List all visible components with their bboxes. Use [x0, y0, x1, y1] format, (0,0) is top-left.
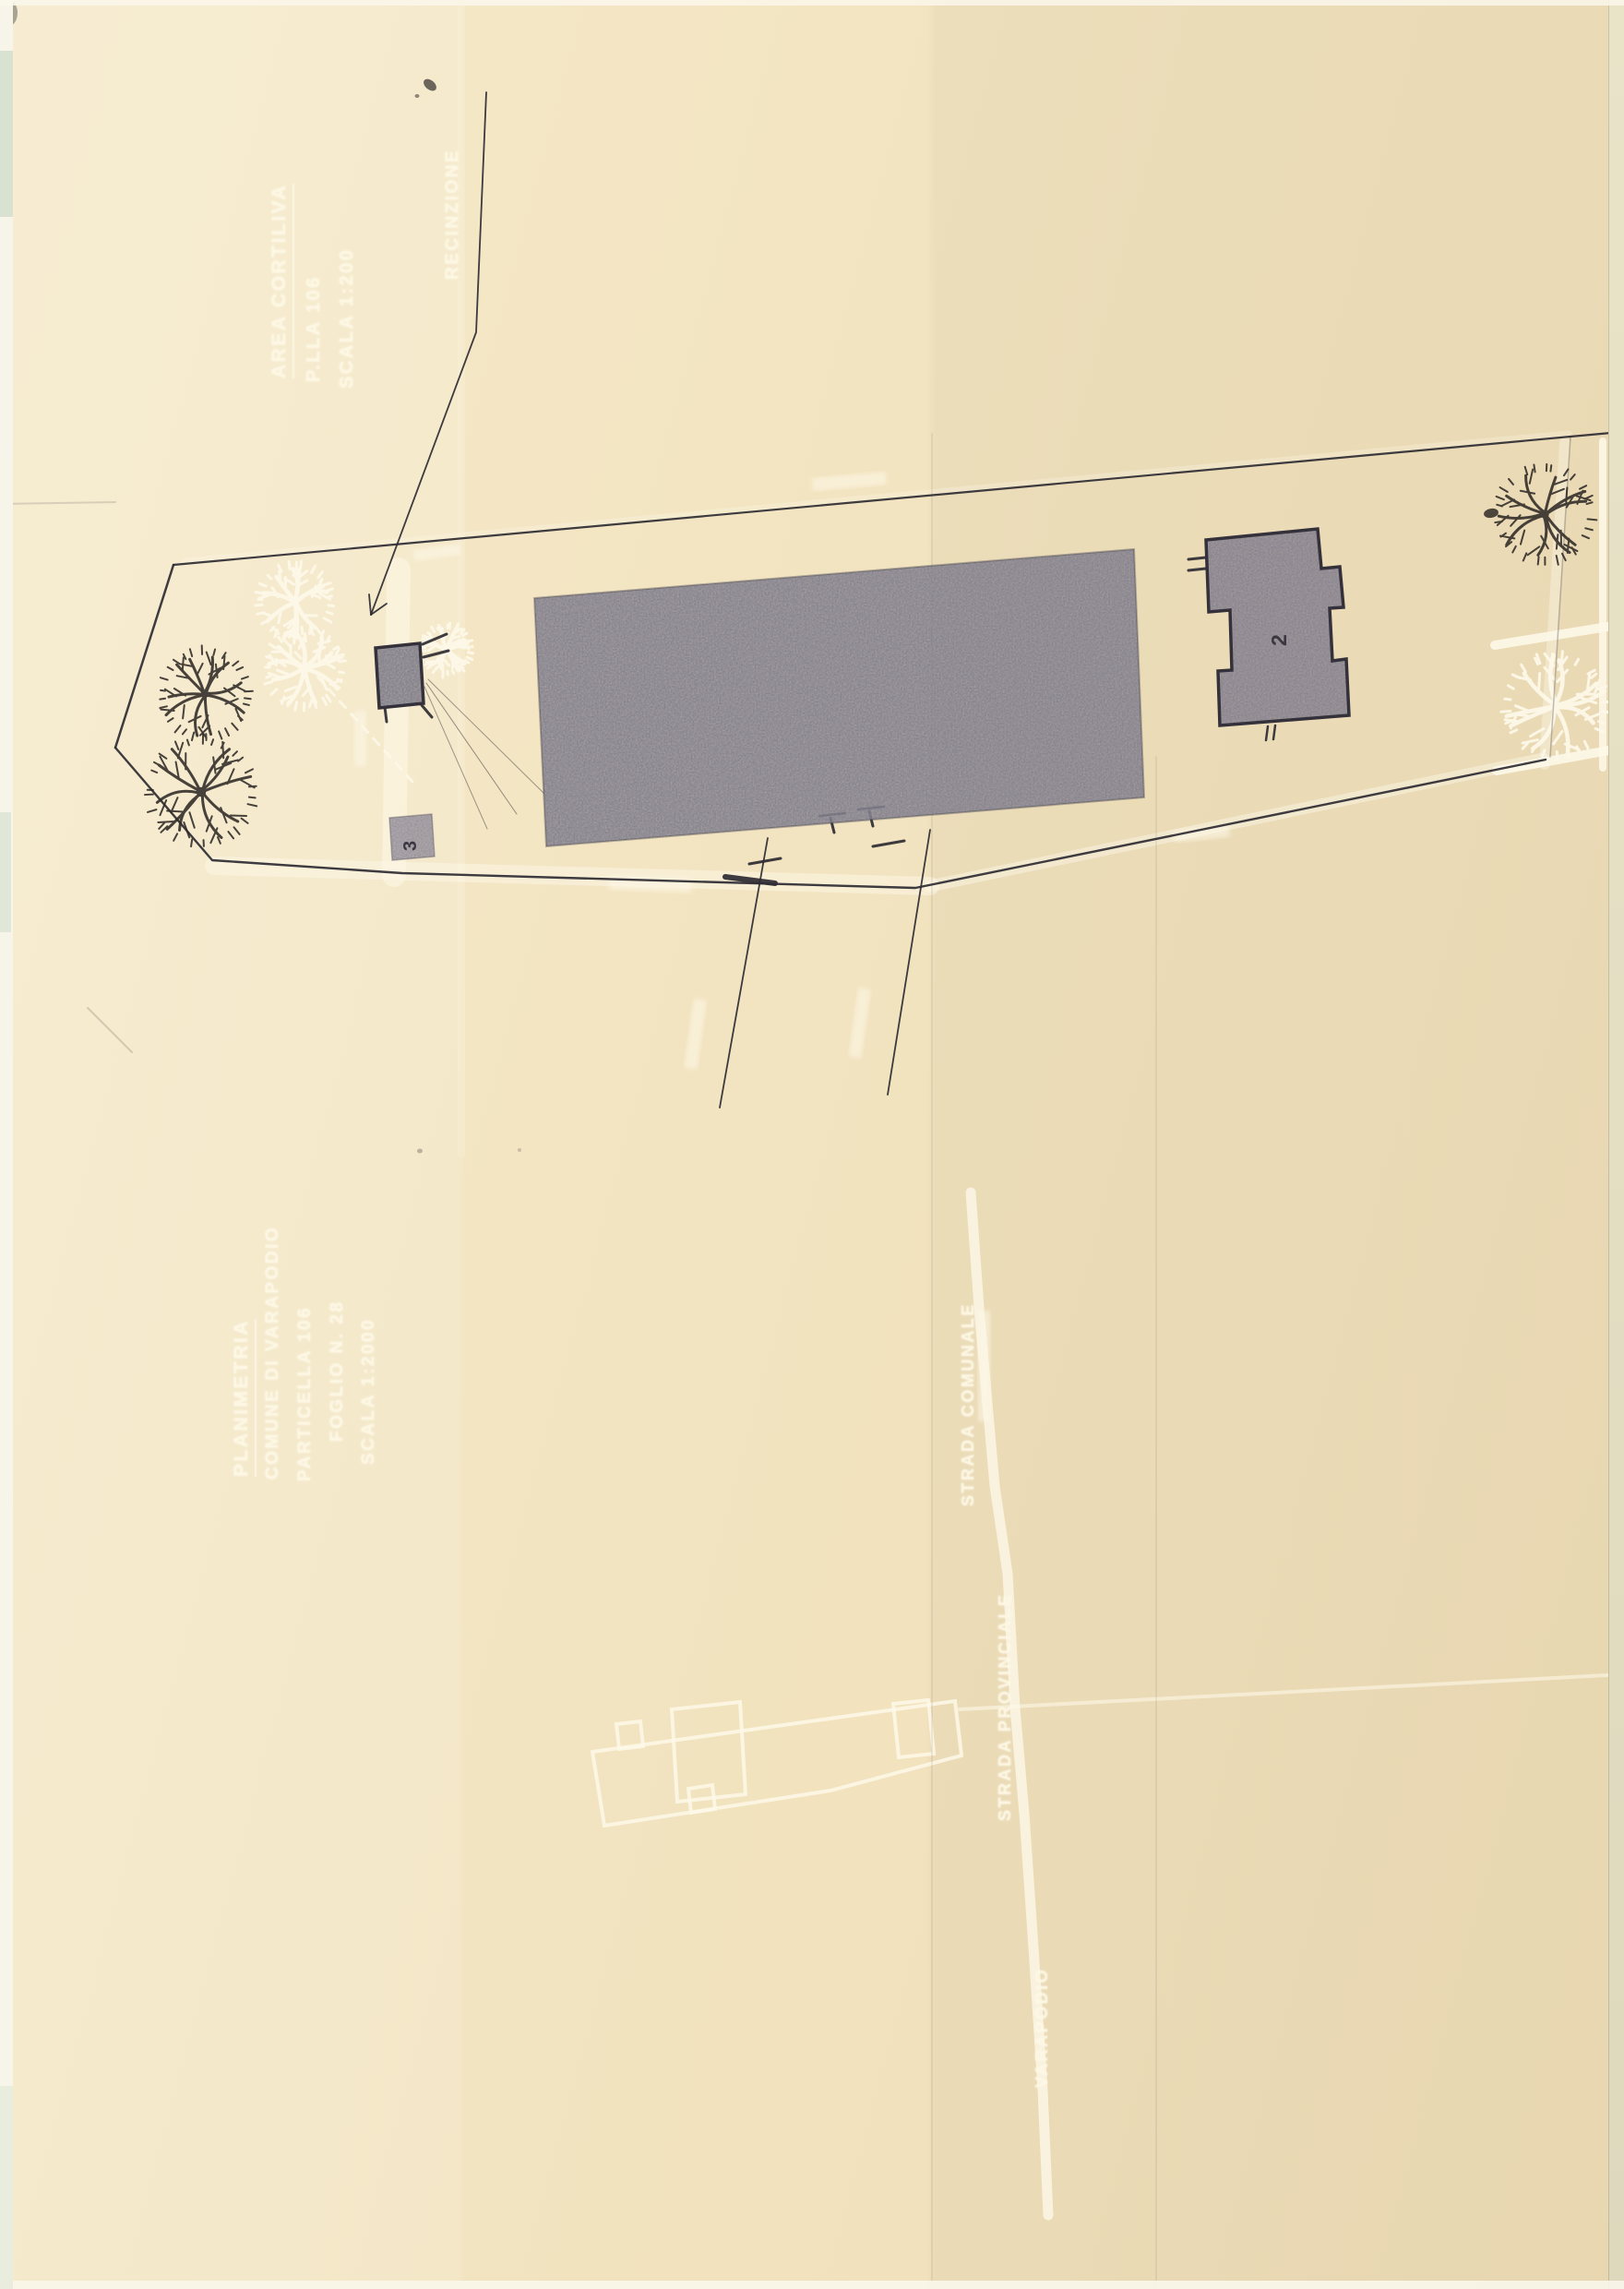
rotated-text-labels: AREA CORTILIVAP.LLA 106SCALA 1:200RECINZ…	[0, 0, 1624, 2289]
strada-provinciale-label: STRADA PROVINCIALE	[997, 1593, 1015, 1821]
comune-label: COMUNE DI VARAPODIO	[264, 1226, 283, 1480]
building-3-number: 3	[400, 840, 421, 851]
recinzione-label: RECINZIONE	[444, 149, 463, 280]
area-scala: SCALA 1:200	[337, 248, 357, 389]
scanned-plan-sheet: AREA CORTILIVAP.LLA 106SCALA 1:200RECINZ…	[0, 0, 1624, 2289]
building-2-number: 2	[1268, 633, 1291, 646]
planimetria-title: PLANIMETRIA	[231, 1319, 257, 1477]
area-cortiliva-title: AREA CORTILIVA	[269, 184, 294, 378]
strada-comunale-label: STRADA COMUNALE	[960, 1302, 978, 1506]
particella-label: PARTICELLA 106	[296, 1306, 316, 1481]
scala-label: SCALA 1:2000	[360, 1318, 379, 1465]
foglio-label: FOGLIO N. 28	[328, 1300, 348, 1442]
varapodio-label: VARAPODIO	[1033, 1968, 1052, 2088]
area-particella: P.LLA 106	[304, 275, 324, 382]
